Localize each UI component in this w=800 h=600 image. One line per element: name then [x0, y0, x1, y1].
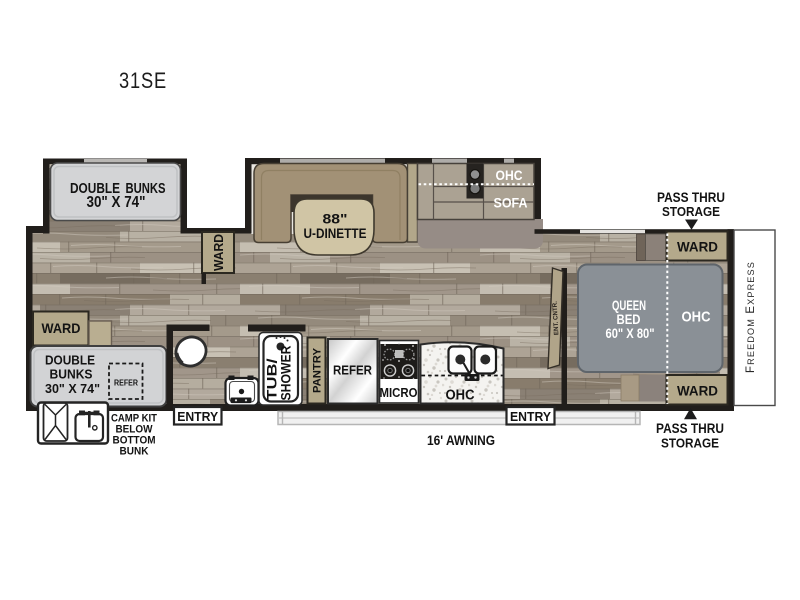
svg-text:SHOWER: SHOWER [279, 345, 294, 400]
svg-text:BUNK: BUNK [120, 446, 149, 458]
svg-text:PANTRY: PANTRY [312, 347, 324, 393]
svg-text:PASS THRU: PASS THRU [656, 421, 724, 436]
svg-text:30" X 74": 30" X 74" [45, 381, 100, 396]
svg-text:QUEEN: QUEEN [612, 298, 646, 313]
svg-text:OHC: OHC [446, 388, 475, 404]
svg-text:WARD: WARD [677, 239, 718, 255]
svg-text:31SE: 31SE [119, 68, 167, 93]
svg-text:REFER: REFER [333, 363, 373, 378]
svg-text:16' AWNING: 16' AWNING [427, 433, 495, 448]
svg-text:REFER: REFER [114, 379, 138, 388]
svg-text:ENTRY: ENTRY [177, 409, 218, 424]
svg-text:30" X 74": 30" X 74" [87, 194, 146, 211]
svg-text:FREEDOM EXPRESS: FREEDOM EXPRESS [743, 261, 757, 373]
svg-text:WARD: WARD [42, 320, 81, 336]
svg-text:SOFA: SOFA [494, 196, 528, 211]
svg-text:BED: BED [617, 312, 641, 327]
svg-text:STORAGE: STORAGE [661, 436, 719, 451]
svg-text:DOUBLE: DOUBLE [45, 353, 95, 368]
svg-text:PASS THRU: PASS THRU [657, 190, 725, 205]
svg-text:OHC: OHC [496, 168, 523, 183]
svg-text:BUNKS: BUNKS [50, 367, 93, 382]
svg-text:U-DINETTE: U-DINETTE [304, 225, 367, 241]
svg-text:TUB/: TUB/ [265, 358, 280, 400]
svg-text:MICRO: MICRO [380, 385, 418, 400]
svg-text:ENTRY: ENTRY [510, 409, 551, 424]
svg-text:60" X 80": 60" X 80" [606, 326, 655, 341]
svg-text:STORAGE: STORAGE [662, 204, 720, 219]
svg-text:OHC: OHC [682, 309, 711, 326]
svg-text:WARD: WARD [677, 383, 718, 399]
svg-text:WARD: WARD [211, 234, 226, 271]
